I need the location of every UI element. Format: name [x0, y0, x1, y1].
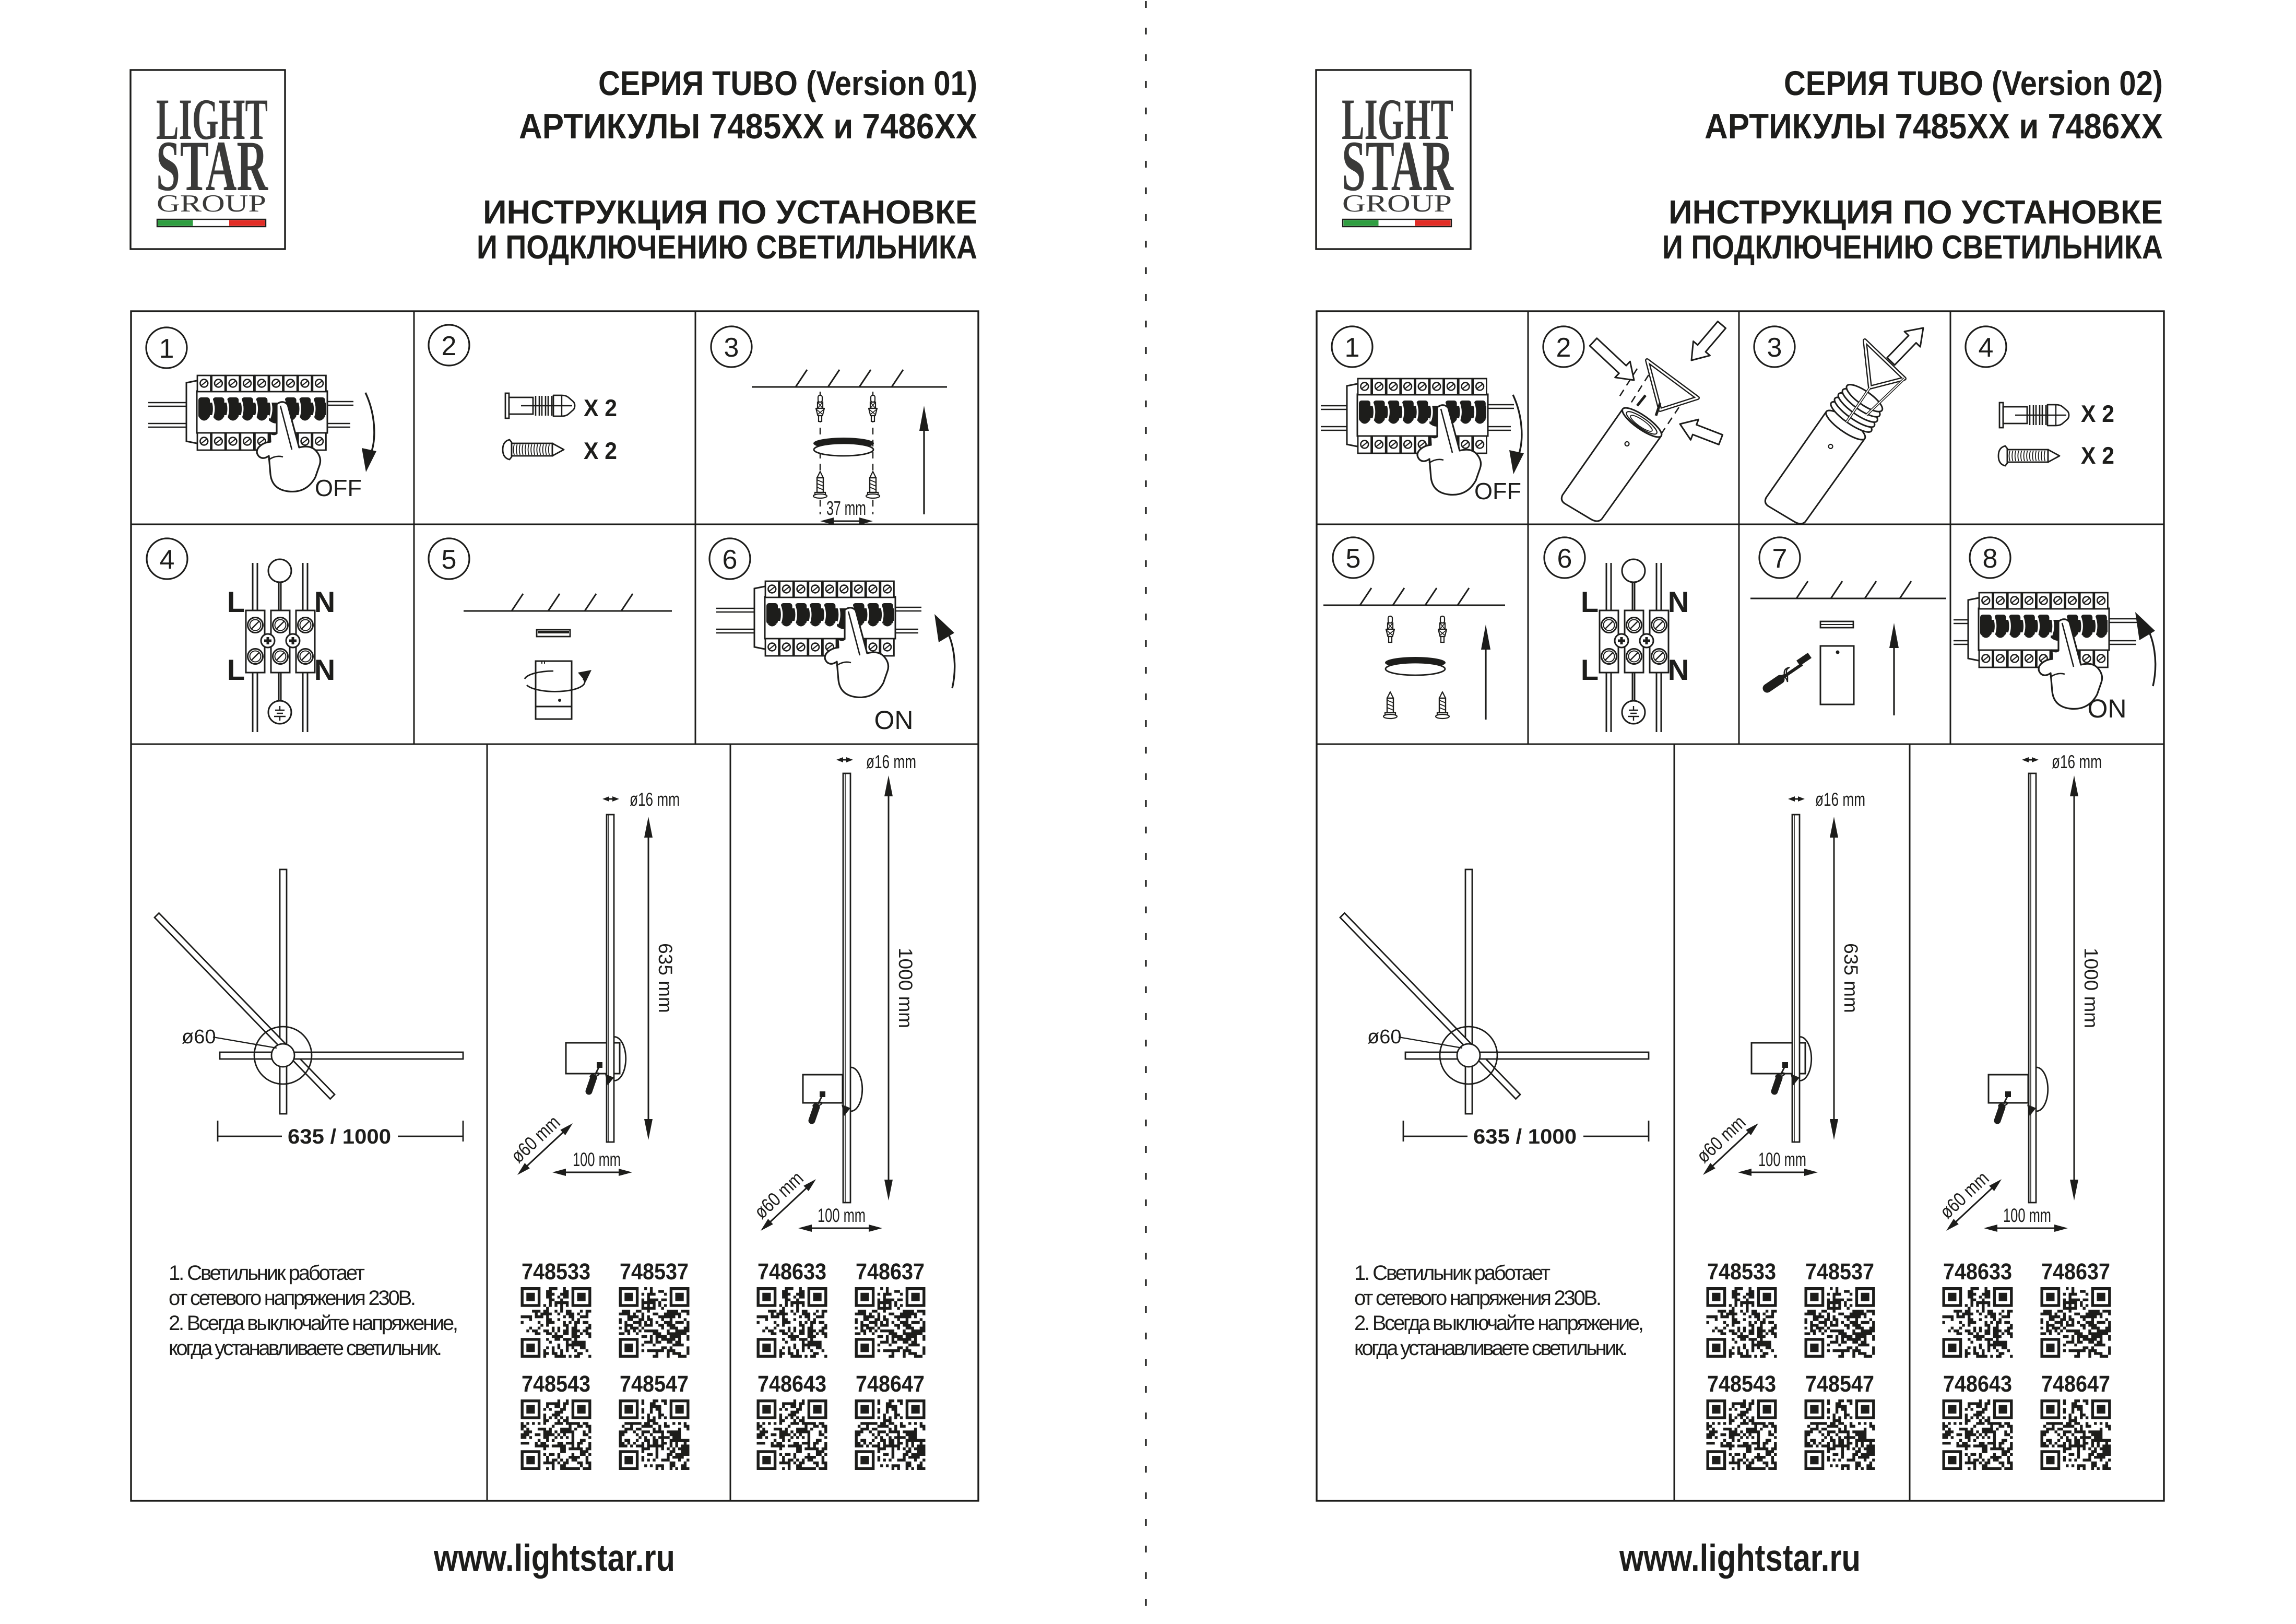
svg-text:ø16 mm: ø16 mm	[1815, 789, 1865, 810]
svg-text:X 2: X 2	[2081, 442, 2114, 469]
svg-text:АРТИКУЛЫ 7485ХХ и 7486ХХ: АРТИКУЛЫ 7485ХХ и 7486ХХ	[519, 107, 977, 146]
svg-text:100 mm: 100 mm	[2003, 1205, 2051, 1226]
svg-text:ø60: ø60	[182, 1026, 216, 1048]
svg-text:1: 1	[1345, 333, 1360, 363]
svg-text:OFF: OFF	[315, 475, 362, 501]
svg-text:748533: 748533	[522, 1259, 590, 1285]
svg-text:ø16 mm: ø16 mm	[2052, 751, 2102, 772]
svg-text:748537: 748537	[1805, 1259, 1874, 1285]
svg-text:7: 7	[1772, 544, 1788, 574]
svg-text:1. Светильник работает: 1. Светильник работает	[1354, 1262, 1551, 1285]
svg-text:N: N	[314, 653, 335, 686]
svg-text:6: 6	[1557, 544, 1572, 574]
svg-text:100 mm: 100 mm	[573, 1149, 621, 1170]
svg-text:635 / 1000: 635 / 1000	[1473, 1125, 1577, 1148]
svg-text:2. Всегда выключайте напряжени: 2. Всегда выключайте напряжение,	[169, 1312, 458, 1335]
svg-text:2. Всегда выключайте напряжени: 2. Всегда выключайте напряжение,	[1354, 1312, 1644, 1335]
svg-text:СЕРИЯ TUBO (Version 01): СЕРИЯ TUBO (Version 01)	[598, 64, 977, 102]
svg-text:X 2: X 2	[584, 394, 617, 421]
svg-text:www.lightstar.ru: www.lightstar.ru	[433, 1537, 675, 1579]
svg-text:748647: 748647	[856, 1371, 925, 1397]
svg-text:И ПОДКЛЮЧЕНИЮ СВЕТИЛЬНИКА: И ПОДКЛЮЧЕНИЮ СВЕТИЛЬНИКА	[1662, 228, 2163, 266]
svg-text:37 mm: 37 mm	[826, 498, 866, 520]
svg-text:748647: 748647	[2041, 1371, 2110, 1397]
svg-text:ø16 mm: ø16 mm	[866, 751, 916, 772]
svg-text:L: L	[227, 653, 245, 686]
svg-text:748547: 748547	[620, 1371, 689, 1397]
svg-text:5: 5	[1346, 544, 1361, 574]
svg-text:L: L	[1581, 653, 1599, 686]
svg-text:748543: 748543	[1707, 1371, 1776, 1397]
svg-text:3: 3	[1767, 333, 1782, 363]
svg-text:СЕРИЯ TUBO (Version 02): СЕРИЯ TUBO (Version 02)	[1784, 64, 2163, 102]
svg-text:АРТИКУЛЫ 7485ХХ и 7486ХХ: АРТИКУЛЫ 7485ХХ и 7486ХХ	[1705, 107, 2163, 146]
svg-text:ø60: ø60	[1367, 1026, 1401, 1048]
svg-text:100 mm: 100 mm	[818, 1205, 866, 1226]
svg-text:GROUP: GROUP	[1342, 190, 1452, 217]
svg-text:от сетевого напряжения 230В.: от сетевого напряжения 230В.	[1354, 1287, 1602, 1310]
svg-text:2: 2	[442, 331, 457, 361]
svg-text:GROUP: GROUP	[157, 190, 266, 217]
svg-text:100 mm: 100 mm	[1758, 1149, 1806, 1170]
svg-text:4: 4	[160, 545, 175, 575]
svg-text:L: L	[227, 585, 245, 618]
svg-text:1. Светильник работает: 1. Светильник работает	[169, 1262, 365, 1285]
svg-text:L: L	[1581, 585, 1599, 618]
svg-text:635 mm: 635 mm	[1840, 943, 1862, 1013]
svg-text:N: N	[314, 585, 335, 618]
svg-text:6: 6	[723, 545, 738, 575]
svg-text:3: 3	[724, 333, 739, 363]
svg-text:748637: 748637	[2041, 1259, 2110, 1285]
svg-text:OFF: OFF	[1474, 478, 1521, 504]
svg-text:748643: 748643	[1943, 1371, 2012, 1397]
svg-text:ø16 mm: ø16 mm	[630, 789, 680, 810]
svg-text:когда устанавливаете светильни: когда устанавливаете светильник.	[1354, 1337, 1628, 1360]
svg-text:748533: 748533	[1707, 1259, 1776, 1285]
svg-text:ИНСТРУКЦИЯ ПО УСТАНОВКЕ: ИНСТРУКЦИЯ ПО УСТАНОВКЕ	[483, 193, 977, 231]
svg-text:ON: ON	[2088, 694, 2127, 723]
svg-text:ИНСТРУКЦИЯ ПО УСТАНОВКЕ: ИНСТРУКЦИЯ ПО УСТАНОВКЕ	[1668, 193, 2163, 231]
svg-text:X 2: X 2	[584, 437, 617, 464]
svg-text:635 mm: 635 mm	[655, 943, 676, 1013]
svg-text:748633: 748633	[1943, 1259, 2012, 1285]
svg-text:N: N	[1668, 585, 1689, 618]
svg-text:1: 1	[159, 334, 174, 364]
svg-text:N: N	[1668, 653, 1689, 686]
svg-text:748633: 748633	[758, 1259, 826, 1285]
svg-text:4: 4	[1979, 333, 1994, 363]
svg-text:1000 mm: 1000 mm	[895, 948, 916, 1028]
svg-text:635 / 1000: 635 / 1000	[288, 1125, 391, 1148]
svg-text:ON: ON	[874, 705, 914, 735]
svg-text:748643: 748643	[758, 1371, 826, 1397]
svg-text:5: 5	[442, 545, 457, 575]
svg-text:8: 8	[1983, 544, 1998, 574]
svg-text:от сетевого напряжения 230В.: от сетевого напряжения 230В.	[169, 1287, 416, 1310]
svg-text:И ПОДКЛЮЧЕНИЮ СВЕТИЛЬНИКА: И ПОДКЛЮЧЕНИЮ СВЕТИЛЬНИКА	[477, 228, 977, 266]
svg-text:748637: 748637	[856, 1259, 925, 1285]
svg-text:748543: 748543	[522, 1371, 590, 1397]
svg-text:когда устанавливаете светильни: когда устанавливаете светильник.	[169, 1337, 442, 1360]
svg-text:2: 2	[1556, 333, 1571, 363]
svg-text:www.lightstar.ru: www.lightstar.ru	[1619, 1537, 1861, 1579]
svg-text:X 2: X 2	[2081, 400, 2114, 427]
svg-text:748547: 748547	[1805, 1371, 1874, 1397]
svg-text:748537: 748537	[620, 1259, 689, 1285]
svg-text:1000 mm: 1000 mm	[2080, 948, 2102, 1028]
